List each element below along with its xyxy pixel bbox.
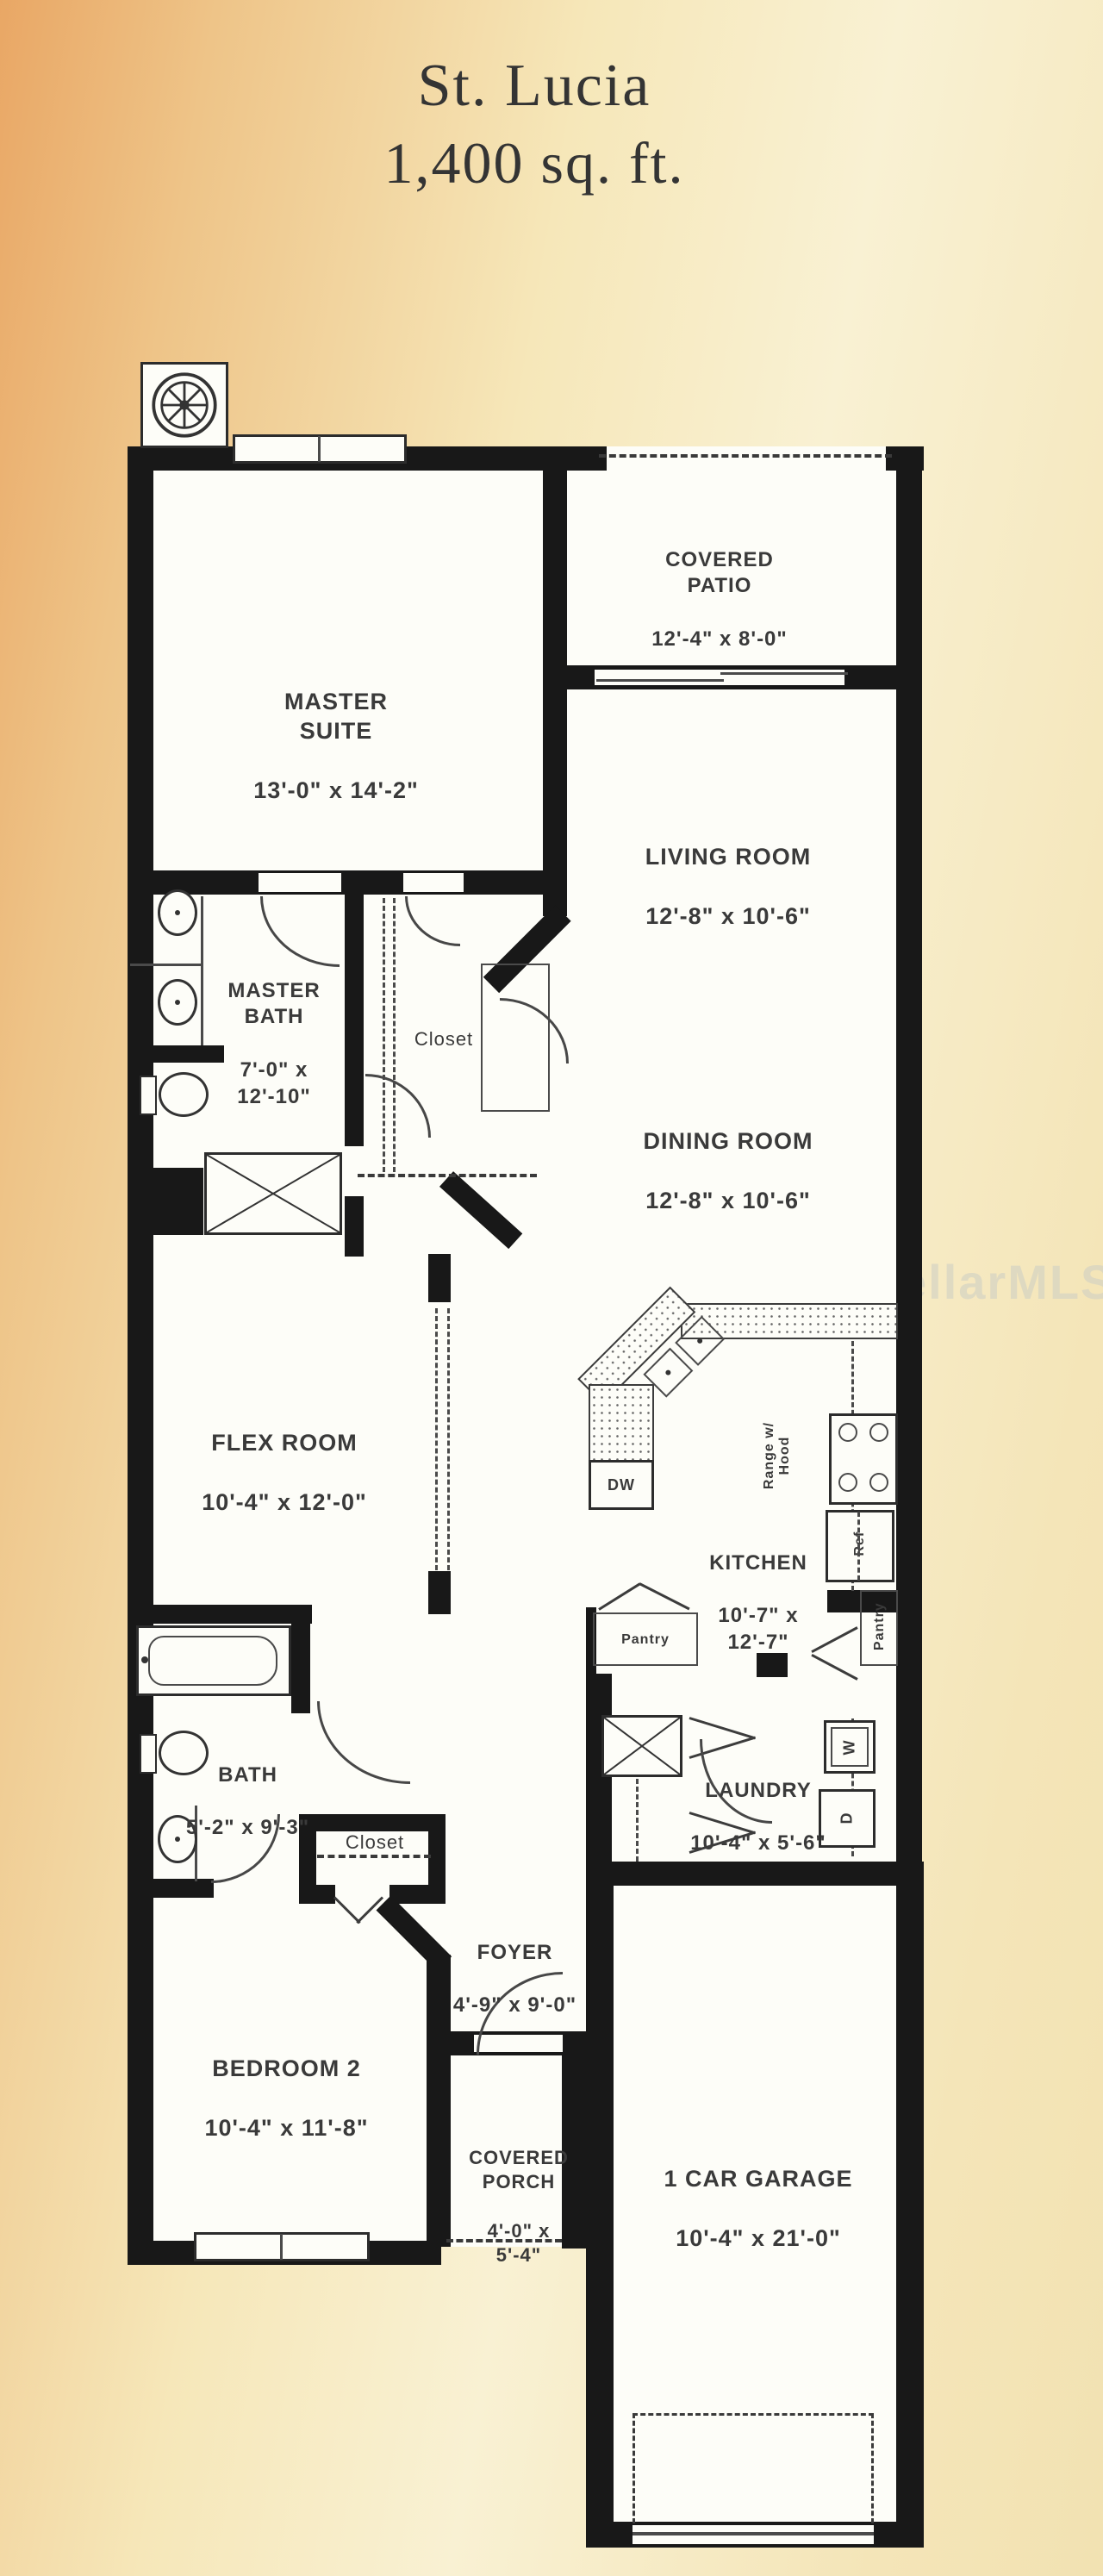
toilet-bowl-icon — [159, 1072, 209, 1117]
flex-opening-dash-2 — [447, 1308, 450, 1570]
label-garage: 1 CAR GARAGE 10'-4" x 21'-0" — [616, 2134, 900, 2253]
wall-master-patio-divider — [543, 446, 567, 916]
label-laundry: LAUNDRY 10'-4" x 5'-6" — [681, 1751, 836, 1857]
door-gap-master-closet — [403, 873, 464, 892]
room-dims: 10'-7" x 12'-7" — [718, 1604, 798, 1654]
room-dims: 10'-4" x 11'-8" — [204, 2115, 368, 2141]
room-dims: 10'-4" x 5'-6" — [690, 1831, 826, 1855]
room-name: LAUNDRY — [705, 1779, 811, 1802]
plan-area: 1,400 sq. ft. — [259, 129, 810, 197]
label-flex-room: FLEX ROOM 10'-4" x 12'-0" — [164, 1398, 405, 1517]
tub-inner-icon — [148, 1636, 277, 1686]
kitchen-counter-left — [589, 1384, 654, 1463]
floor-plan-page: St. Lucia 1,400 sq. ft. StellarMLS — [0, 0, 1103, 2576]
wall-closet2-bottom-left — [299, 1885, 335, 1904]
label-bath2: BATH 5'-2" x 9'-3" — [172, 1736, 323, 1842]
wall-bath-closet-divider-lower — [345, 1196, 364, 1257]
door-gap-master-bath — [259, 873, 341, 892]
garage-door-line — [633, 2532, 874, 2535]
patio-open-edge-dashed — [599, 454, 892, 458]
burner-icon — [838, 1423, 857, 1442]
pantry-right-label: Pantry — [872, 1579, 888, 1674]
room-name: MASTER SUITE — [284, 689, 388, 745]
plan-name: St. Lucia — [259, 52, 810, 121]
room-name: BEDROOM 2 — [212, 2055, 361, 2081]
wall-hall-stub-lower — [428, 1571, 451, 1614]
wall-right-main — [896, 446, 922, 1886]
sliding-door-pane-2 — [720, 672, 848, 675]
wall-kitchen-laundry-stub — [757, 1653, 788, 1677]
room-dims: 12'-8" x 10'-6" — [645, 903, 811, 929]
wall-hall-stub-upper — [428, 1254, 451, 1302]
room-dims: 12'-4" x 8'-0" — [651, 627, 788, 651]
dishwasher-label: DW — [589, 1475, 654, 1495]
room-dims: 12'-8" x 10'-6" — [645, 1188, 811, 1213]
sink-drain-icon — [175, 1000, 180, 1005]
sink-drain-icon — [175, 910, 180, 915]
label-living-room: LIVING ROOM 12'-8" x 10'-6" — [608, 812, 849, 931]
label-master-suite: MASTER SUITE 13'-0" x 14'-2" — [215, 657, 457, 806]
utility-x-icon — [604, 1718, 680, 1775]
room-name: KITCHEN — [709, 1551, 807, 1575]
masterbath-counter-edge — [201, 896, 203, 1045]
wall-bath2-bottom — [128, 1879, 214, 1898]
room-name: LIVING ROOM — [645, 844, 812, 870]
label-closet2: Closet — [327, 1831, 422, 1855]
garage-door-dashed-outline — [633, 2413, 874, 2523]
room-name: FOYER — [477, 1941, 553, 1964]
wall-master-bottom — [128, 870, 567, 895]
toilet-tank-icon — [140, 1076, 157, 1115]
wall-patio-top-left — [567, 446, 607, 471]
room-dims: 7'-0" x 12'-10" — [237, 1058, 310, 1108]
refrigerator-label: Ref — [852, 1518, 868, 1569]
utility-dash — [636, 1779, 639, 1862]
room-name: COVERED PORCH — [469, 2147, 569, 2192]
room-dims: 4'-9" x 9'-0" — [453, 1993, 576, 2017]
burner-icon — [869, 1423, 888, 1442]
label-covered-patio: COVERED PATIO 12'-4" x 8'-0" — [616, 521, 823, 653]
label-master-bath: MASTER BATH 7'-0" x 12'-10" — [205, 951, 343, 1110]
room-name: DINING ROOM — [644, 1128, 813, 1154]
wall-bath2-right — [291, 1610, 310, 1713]
room-name: FLEX ROOM — [211, 1430, 358, 1456]
sliding-door-pane-1 — [596, 679, 724, 682]
wall-laundry-bottom — [586, 1862, 924, 1886]
room-dims: 10'-4" x 21'-0" — [676, 2225, 841, 2251]
range-icon — [829, 1413, 898, 1505]
refrigerator-dash — [857, 1512, 860, 1581]
window-bedroom2-divider — [280, 2234, 283, 2260]
shower-x-icon — [207, 1155, 340, 1232]
plan-title-block: St. Lucia 1,400 sq. ft. — [259, 52, 810, 197]
wall-flex-bottom — [128, 1605, 312, 1624]
room-dims: 4'-0" x 5'-4" — [488, 2220, 551, 2266]
utility-tub-icon — [601, 1715, 682, 1777]
label-master-closet: Closet — [392, 1027, 495, 1051]
dryer-label: D — [837, 1790, 857, 1847]
closet2-rod-dash — [317, 1855, 431, 1858]
room-name: BATH — [218, 1763, 277, 1787]
flex-opening-dash-1 — [435, 1308, 438, 1570]
label-bedroom2: BEDROOM 2 10'-4" x 11'-8" — [159, 2024, 414, 2143]
range-label: Range w/ Hood — [762, 1408, 798, 1503]
wall-left-main — [128, 446, 153, 2265]
label-dining-room: DINING ROOM 12'-8" x 10'-6" — [608, 1096, 849, 1215]
room-name: 1 CAR GARAGE — [664, 2166, 852, 2192]
ac-fan-icon — [140, 362, 228, 448]
burner-icon — [838, 1473, 857, 1492]
label-foyer: FOYER 4'-9" x 9'-0" — [435, 1913, 595, 2019]
room-dims: 5'-2" x 9'-3" — [186, 1816, 309, 1839]
label-covered-porch: COVERED PORCH 4'-0" x 5'-4" — [464, 2122, 574, 2267]
burner-icon — [869, 1473, 888, 1492]
wall-masterbath-chunk — [128, 1168, 203, 1235]
wall-laundry-left — [586, 1674, 612, 1886]
room-dims: 10'-4" x 12'-0" — [202, 1489, 367, 1515]
toilet-tank-icon — [140, 1734, 157, 1774]
window-master-divider — [318, 436, 321, 462]
tub-faucet-icon — [141, 1656, 148, 1663]
room-dims: 13'-0" x 14'-2" — [253, 777, 419, 803]
master-closet-shelf-dash — [358, 1174, 537, 1177]
masterbath-counter-divider — [130, 964, 201, 966]
label-kitchen: KITCHEN 10'-7" x 12'-7" — [681, 1524, 836, 1656]
wall-closet2-right — [428, 1814, 446, 1902]
room-name: MASTER BATH — [227, 979, 320, 1029]
washer-label: W — [839, 1722, 859, 1774]
room-name: COVERED PATIO — [665, 548, 774, 598]
shower-icon — [204, 1152, 342, 1235]
fan-blades-icon — [143, 365, 226, 446]
wall-bath-closet-divider — [345, 895, 364, 1146]
